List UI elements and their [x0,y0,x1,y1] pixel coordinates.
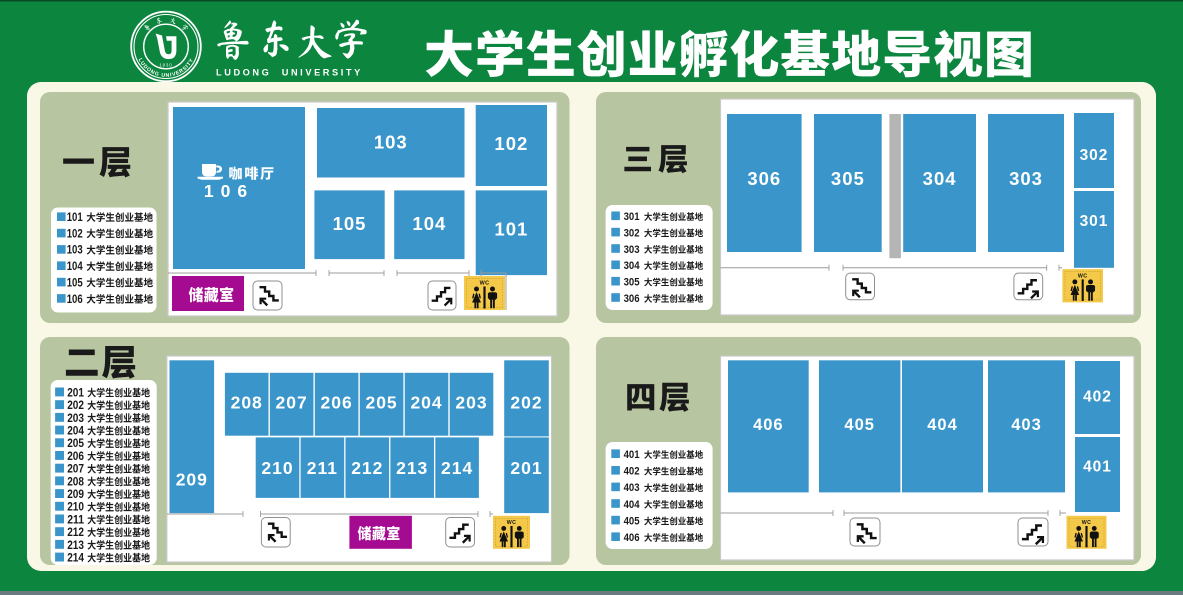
svg-text:102: 102 [67,226,83,240]
svg-text:305: 305 [831,168,865,189]
svg-text:WC: WC [507,520,517,526]
svg-text:404: 404 [927,416,958,434]
svg-text:1930: 1930 [159,63,172,68]
svg-text:301: 301 [624,211,640,223]
svg-text:301: 301 [1080,213,1109,230]
svg-text:211: 211 [307,458,338,478]
svg-text:305: 305 [624,277,640,289]
svg-text:403: 403 [624,482,640,494]
svg-text:207: 207 [276,392,308,412]
svg-text:214: 214 [441,458,473,478]
svg-text:101: 101 [494,219,528,240]
svg-text:213: 213 [396,458,428,478]
svg-text:103: 103 [374,131,408,152]
svg-text:403: 403 [1011,416,1042,434]
svg-text:404: 404 [624,499,641,511]
svg-text:210: 210 [261,458,293,478]
svg-text:306: 306 [747,168,781,189]
svg-text:303: 303 [624,244,640,256]
svg-text:401: 401 [624,449,640,461]
svg-text:306: 306 [624,293,640,305]
svg-text:104: 104 [412,213,446,234]
svg-text:402: 402 [624,466,640,478]
svg-text:214: 214 [67,551,84,565]
svg-text:402: 402 [1083,389,1112,406]
svg-text:405: 405 [624,515,640,527]
svg-text:WC: WC [1078,274,1088,280]
svg-text:106: 106 [67,292,83,306]
svg-text:103: 103 [67,243,83,257]
svg-text:303: 303 [1009,168,1043,189]
svg-text:101: 101 [67,210,83,224]
svg-text:WC: WC [1082,520,1092,526]
svg-text:206: 206 [321,392,353,412]
svg-text:401: 401 [1083,459,1112,476]
svg-text:104: 104 [67,259,83,273]
svg-text:LUDONG UNIVERSITY: LUDONG UNIVERSITY [216,68,363,78]
svg-text:203: 203 [455,392,487,412]
svg-text:105: 105 [67,275,83,289]
svg-text:304: 304 [624,260,641,272]
svg-text:405: 405 [844,416,875,434]
svg-text:208: 208 [231,392,263,412]
svg-text:WC: WC [480,281,490,287]
svg-text:106: 106 [204,181,254,201]
svg-text:202: 202 [510,392,542,412]
svg-text:302: 302 [1080,147,1109,164]
svg-text:105: 105 [333,213,367,234]
svg-text:205: 205 [365,392,397,412]
svg-text:406: 406 [753,416,784,434]
svg-text:304: 304 [923,168,957,189]
svg-text:302: 302 [624,227,640,239]
svg-text:204: 204 [410,392,442,412]
svg-text:201: 201 [510,458,542,478]
svg-text:209: 209 [176,469,208,489]
svg-text:212: 212 [351,458,383,478]
svg-text:406: 406 [624,532,640,544]
svg-text:102: 102 [494,133,528,154]
